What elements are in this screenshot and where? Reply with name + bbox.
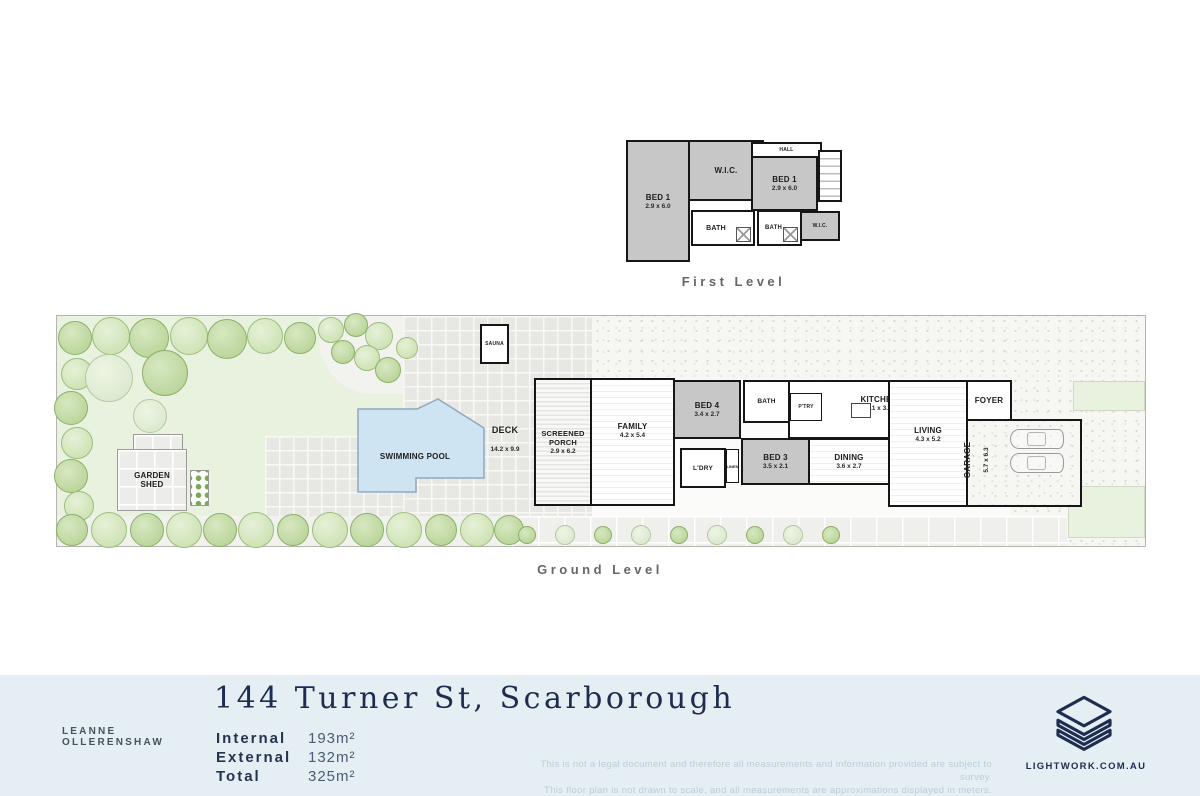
room-bed1-left: BED 1 2.9 x 6.0 <box>626 140 690 262</box>
car-icon <box>1010 429 1064 449</box>
room-dims: 14.2 x 9.9 <box>491 446 520 453</box>
area-row: External132m² <box>216 749 356 768</box>
tree-icon <box>425 514 457 546</box>
area-value: 132m² <box>308 749 356 766</box>
room-dims: 2.9 x 6.2 <box>550 448 575 455</box>
area-label: External <box>216 749 308 766</box>
room-pantry: P'TRY <box>790 393 822 421</box>
tree-icon <box>555 525 575 545</box>
room-name: W.I.C. <box>813 223 828 229</box>
tree-icon <box>54 459 88 493</box>
tree-icon <box>54 391 88 425</box>
room-living: LIVING 4.3 x 5.2 <box>888 380 968 507</box>
room-name: GARDEN SHED <box>129 471 175 489</box>
room-dining: DINING 3.6 x 2.7 <box>808 438 890 485</box>
room-dims: 4.3 x 5.2 <box>915 436 940 443</box>
kitchen-island <box>851 403 871 418</box>
room-linen: LINEN <box>726 449 739 483</box>
front-concrete <box>592 316 1065 379</box>
room-bath-ground: BATH <box>743 380 790 423</box>
tree-icon <box>133 399 167 433</box>
tree-icon <box>85 354 133 402</box>
room-name: DINING <box>834 453 863 462</box>
tree-icon <box>58 321 92 355</box>
room-laundry: L'DRY <box>680 448 726 488</box>
area-label: Total <box>216 768 308 785</box>
area-summary: Internal193m² External132m² Total325m² <box>216 730 356 787</box>
tree-icon <box>350 513 384 547</box>
tree-icon <box>670 526 688 544</box>
tree-icon <box>207 319 247 359</box>
disclaimer-text: This is not a legal document and therefo… <box>532 758 992 796</box>
tree-icon <box>203 513 237 547</box>
room-family: FAMILY 4.2 x 5.4 <box>590 378 675 506</box>
area-label: Internal <box>216 730 308 747</box>
room-name: LIVING <box>914 426 942 435</box>
tree-icon <box>331 340 355 364</box>
agent-name: LEANNE OLLERENSHAW <box>62 726 212 748</box>
pool-label: SWIMMING POOL <box>365 446 465 464</box>
room-bed3: BED 3 3.5 x 2.1 <box>741 438 810 485</box>
room-name: FAMILY <box>618 422 648 431</box>
room-bed4: BED 4 3.4 x 2.7 <box>673 380 741 439</box>
room-name: BATH <box>765 224 782 233</box>
room-bath-right: BATH <box>757 210 802 246</box>
tree-icon <box>783 525 803 545</box>
ground-level-plan: SWIMMING POOL SAUNA DECK 14.2 x 9.9 GARD… <box>56 315 1146 547</box>
floorplan-page: BED 1 2.9 x 6.0 W.I.C. HALL BED 1 2.9 x … <box>0 0 1200 796</box>
tree-icon <box>396 337 418 359</box>
room-name: BATH <box>757 397 775 406</box>
footer: LO LEANNE OLLERENSHAW 144 Turner St, Sca… <box>0 675 1200 796</box>
room-name: FOYER <box>975 396 1004 405</box>
tree-icon <box>386 512 422 548</box>
first-level-plan: BED 1 2.9 x 6.0 W.I.C. HALL BED 1 2.9 x … <box>622 133 845 273</box>
disclaimer-line: This is not a legal document and therefo… <box>540 759 992 783</box>
tree-icon <box>318 317 344 343</box>
property-address: 144 Turner St, Scarborough <box>214 681 735 716</box>
first-level-title: First Level <box>622 274 845 289</box>
room-name: BED 4 <box>695 401 720 410</box>
room-screened-porch: SCREENED PORCH 2.9 x 6.2 <box>534 378 592 506</box>
disclaimer-line: This floor plan is not drawn to scale, a… <box>544 785 992 796</box>
ground-level-title: Ground Level <box>56 562 1144 577</box>
tree-icon <box>375 357 401 383</box>
room-name: LINEN <box>727 464 739 469</box>
tree-icon <box>631 525 651 545</box>
tree-icon <box>312 512 348 548</box>
room-bath-left: BATH <box>691 210 755 246</box>
room-wic-right: W.I.C. <box>800 211 840 241</box>
tree-icon <box>822 526 840 544</box>
tree-icon <box>518 526 536 544</box>
tree-icon <box>460 513 494 547</box>
lightwork-logo-icon <box>1053 695 1115 758</box>
lawn-patch-top <box>1073 381 1145 411</box>
room-name: HALL <box>779 147 793 153</box>
shower-icon <box>736 227 751 242</box>
tree-icon <box>142 350 188 396</box>
tree-icon <box>707 525 727 545</box>
area-row: Internal193m² <box>216 730 356 749</box>
area-value: 325m² <box>308 768 356 785</box>
area-value: 193m² <box>308 730 356 747</box>
tree-icon <box>166 512 202 548</box>
room-dims: 3.5 x 2.1 <box>763 463 788 470</box>
room-dims: 5.7 x 6.3 <box>983 447 990 472</box>
tree-icon <box>170 317 208 355</box>
tree-icon <box>130 513 164 547</box>
room-name: W.I.C. <box>715 166 738 175</box>
room-dims: 4.2 x 5.4 <box>620 432 645 439</box>
garden-shed: GARDEN SHED <box>117 449 187 511</box>
tree-icon <box>247 318 283 354</box>
tree-icon <box>284 322 316 354</box>
tree-icon <box>594 526 612 544</box>
room-name: SWIMMING POOL <box>380 452 450 461</box>
tree-icon <box>746 526 764 544</box>
room-sauna: SAUNA <box>480 324 509 364</box>
shower-icon <box>783 227 798 242</box>
room-name: SCREENED PORCH <box>538 429 588 447</box>
room-name: L'DRY <box>693 464 713 473</box>
room-foyer: FOYER <box>966 380 1012 421</box>
room-name: BED 3 <box>763 453 788 462</box>
room-name: P'TRY <box>798 404 813 410</box>
tree-icon <box>277 514 309 546</box>
garage-label: GARAGE 5.7 x 6.3 <box>957 430 993 490</box>
planter-box <box>190 470 209 506</box>
room-name: BATH <box>706 224 726 233</box>
room-bed1-right: BED 1 2.9 x 6.0 <box>751 156 818 211</box>
stairs <box>818 150 842 202</box>
room-name: DECK <box>492 425 518 435</box>
tree-icon <box>61 427 93 459</box>
room-name: BED 1 <box>772 175 797 184</box>
area-row: Total325m² <box>216 768 356 787</box>
room-name: GARAGE <box>963 442 972 478</box>
tree-icon <box>92 317 130 355</box>
tree-icon <box>56 514 88 546</box>
lightwork-brand-url: LIGHTWORK.COM.AU <box>1020 761 1152 772</box>
room-name: BED 1 <box>646 193 671 202</box>
tree-icon <box>238 512 274 548</box>
tree-icon <box>91 512 127 548</box>
room-dims: 3.4 x 2.7 <box>694 411 719 418</box>
room-name: SAUNA <box>485 341 504 347</box>
room-dims: 2.9 x 6.0 <box>772 185 797 192</box>
room-dims: 3.6 x 2.7 <box>836 463 861 470</box>
room-dims: 2.9 x 6.0 <box>645 203 670 210</box>
car-icon <box>1010 453 1064 473</box>
